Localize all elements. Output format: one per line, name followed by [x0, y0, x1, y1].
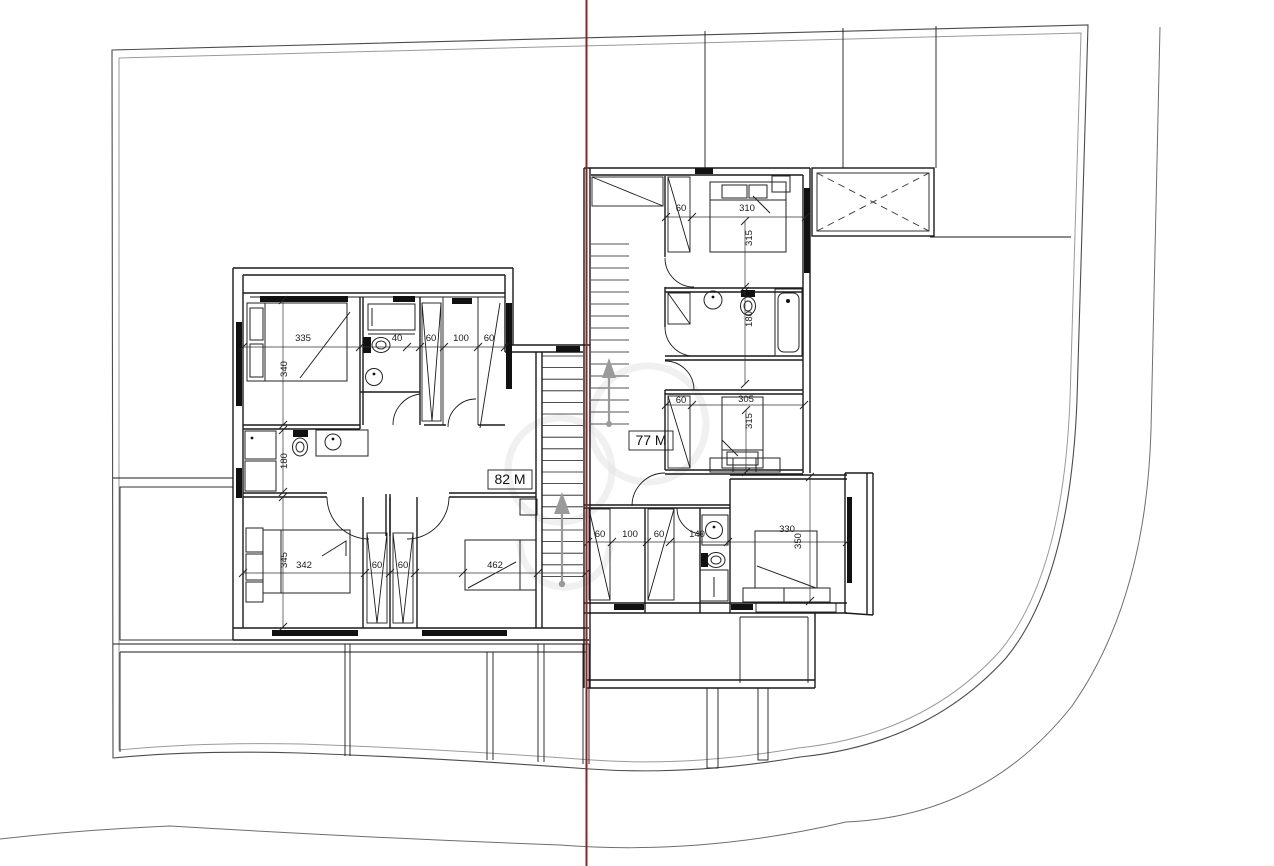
dimension-label: 40 — [392, 333, 403, 344]
dimension-label: 335 — [295, 333, 311, 344]
window-icon — [556, 346, 580, 352]
door-arc — [665, 327, 694, 356]
vanity-washbasin — [316, 430, 368, 456]
dimension-label: 100 — [453, 333, 469, 344]
wardrobe — [668, 177, 690, 252]
window-icon — [236, 468, 242, 498]
dimension-label: 60 — [654, 529, 665, 540]
staircase-right-arrow — [602, 358, 616, 427]
toilet-icon — [701, 553, 725, 568]
window-icon — [393, 296, 415, 302]
double-bed — [710, 397, 780, 472]
washbasin-icon — [704, 291, 722, 309]
dimension-label: 60 — [372, 560, 383, 571]
floor-plan-drawing: 3353404060100601803453426060462603103151… — [0, 0, 1274, 866]
wardrobe — [668, 293, 690, 324]
dimension-label: 315 — [744, 230, 755, 246]
shower-tray — [245, 431, 276, 491]
dimension-label: 345 — [279, 552, 290, 568]
toilet-icon — [363, 337, 390, 353]
dimension-label: 180 — [279, 453, 290, 469]
unit-right-terrace — [587, 613, 815, 768]
wardrobe — [648, 509, 674, 600]
left-garden-terraces — [113, 478, 589, 764]
wardrobe — [480, 303, 500, 428]
dimension-label: 305 — [738, 394, 754, 405]
terrace-hatch — [812, 168, 934, 236]
door-arc — [393, 394, 420, 425]
window-icon — [422, 630, 507, 636]
terrace-post — [758, 688, 768, 760]
door-arc — [665, 258, 694, 287]
unit-right-area-label: 77 M — [635, 432, 666, 448]
window-icon — [236, 322, 242, 406]
window-icon — [506, 303, 512, 389]
window-icon — [731, 604, 753, 610]
shower-tray — [700, 570, 728, 601]
dimension-label: 315 — [744, 413, 755, 429]
window-icon — [804, 188, 810, 273]
dimension-label: 140 — [689, 529, 705, 540]
window-icon — [614, 604, 644, 610]
dimension-label: 310 — [739, 203, 755, 214]
toilet-icon — [293, 430, 309, 456]
dimension-label: 180 — [744, 311, 755, 327]
washbasin-icon — [702, 515, 728, 545]
dimension-label: 350 — [793, 533, 804, 549]
dimension-label: 60 — [426, 333, 437, 344]
wardrobe — [393, 533, 413, 623]
dimension-label: 60 — [484, 333, 495, 344]
wardrobe — [367, 533, 387, 623]
terrace-post — [707, 688, 718, 768]
window-icon — [272, 630, 358, 636]
wardrobe — [422, 303, 441, 421]
wardrobe — [592, 177, 663, 206]
dimension-label: 60 — [595, 529, 606, 540]
dimension-label: 340 — [279, 361, 290, 377]
dimension-label: 100 — [622, 529, 638, 540]
unit-left-area-label: 82 M — [494, 471, 525, 487]
dimension-label: 342 — [296, 560, 312, 571]
door-arc — [448, 399, 476, 427]
floor-plan-canvas: 3353404060100601803453426060462603103151… — [0, 0, 1274, 866]
dimension-label: 462 — [487, 560, 503, 571]
window-icon — [260, 296, 348, 302]
plot-subdivision-lines — [705, 26, 1071, 237]
bathtub-icon — [775, 289, 802, 356]
washbasin-icon — [366, 369, 383, 386]
bathroom-shelf — [368, 304, 415, 334]
dimension-label: 60 — [676, 203, 687, 214]
window-icon — [452, 298, 472, 304]
sliding-door-icon — [756, 603, 836, 612]
dimension-label: 60 — [398, 560, 409, 571]
window-icon — [695, 168, 713, 174]
wardrobe — [668, 396, 690, 468]
dimension-label: 60 — [676, 395, 687, 406]
